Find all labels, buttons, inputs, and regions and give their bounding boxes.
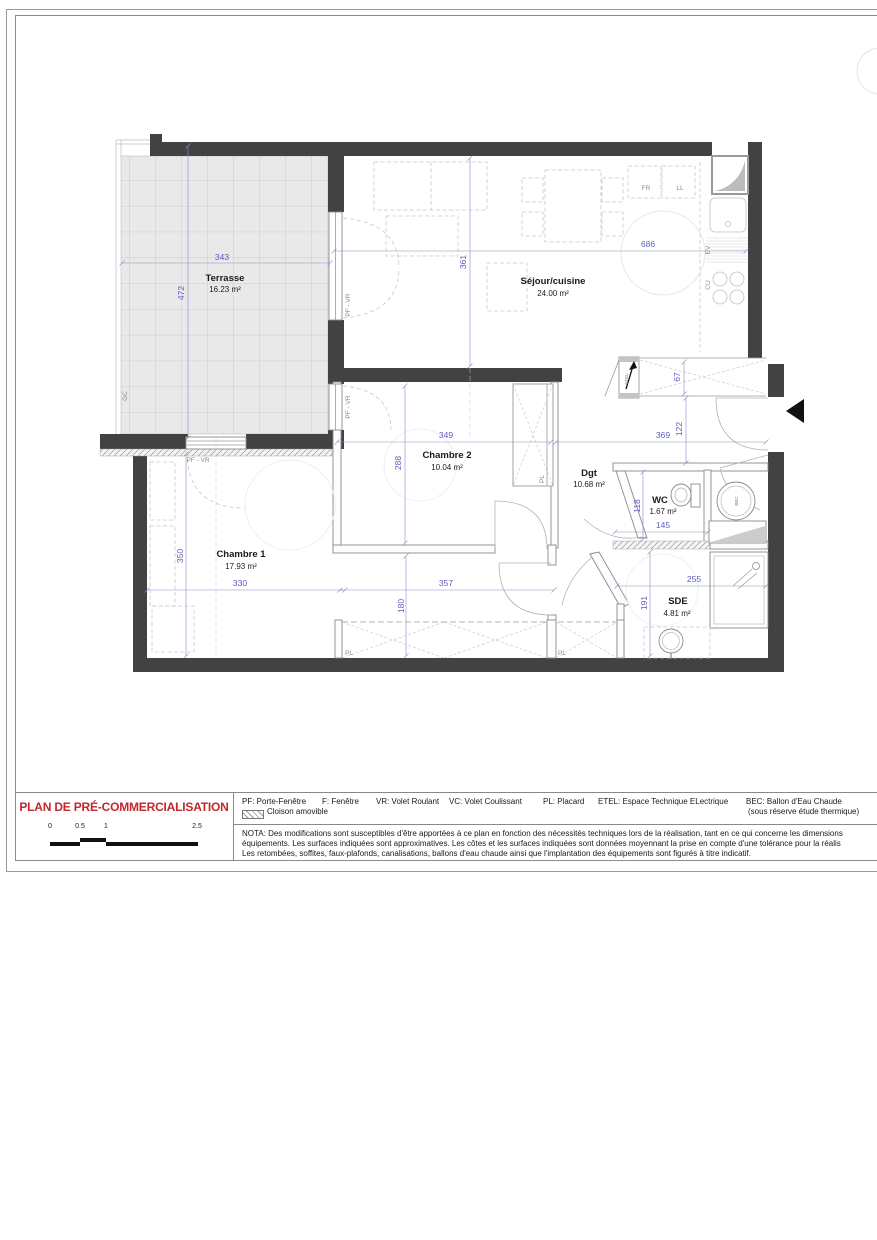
scale-tick: 1 — [104, 823, 108, 830]
drawing-sheet: ETEL PL PL PL — [0, 0, 877, 1240]
room-name-dgt: Dgt — [581, 468, 598, 479]
scale-tick: 0 — [48, 823, 52, 830]
washer-tag: LL — [676, 185, 684, 192]
room-area-dgt: 10.68 m² — [573, 480, 605, 489]
bec-tag: BEC — [734, 496, 739, 506]
dim-sde-width: 255 — [687, 574, 701, 584]
chambre-furniture — [150, 429, 698, 652]
title-block: PLAN DE PRÉ-COMMERCIALISATION 0 0.5 1 2.… — [15, 792, 877, 860]
placard-tag: PL — [345, 650, 353, 657]
fridge-tag: FR — [642, 185, 651, 192]
scale-tick: 0.5 — [75, 823, 85, 830]
legend-cell: PF: Porte-Fenêtre F: Fenêtre VR: Volet R… — [234, 793, 877, 860]
room-area-chambre2: 10.04 m² — [431, 463, 463, 472]
room-name-sde: SDE — [668, 596, 688, 607]
legend-item: PL: Placard — [543, 797, 584, 806]
water-heater: BEC — [709, 482, 766, 543]
room-area-wc: 1.67 m² — [649, 507, 676, 516]
placards-bottom: PL PL — [335, 620, 624, 658]
scale-segment — [106, 842, 198, 846]
room-area-chambre1: 17.93 m² — [225, 562, 257, 571]
room-name-wc: WC — [652, 495, 668, 506]
floor-plan-drawing: ETEL PL PL PL — [0, 0, 877, 790]
dim-chambre1-height: 350 — [175, 549, 185, 563]
scale-tick: 2.5 — [192, 823, 202, 830]
dim-sejour-width: 686 — [641, 239, 655, 249]
dim-chambre1-width: 330 — [233, 578, 247, 588]
dim-chambre2-height: 288 — [393, 456, 403, 470]
room-area-sde: 4.81 m² — [663, 609, 690, 618]
cloison-amovible-swatch — [242, 810, 264, 819]
dim-terrasse-width: 343 — [215, 252, 229, 262]
dim-chambre2-width: 349 — [439, 430, 453, 440]
dim-entry-height: 122 — [674, 422, 684, 436]
room-area-sejour: 24.00 m² — [537, 289, 569, 298]
dim-soffit-depth: 67 — [672, 372, 682, 382]
sejour-furniture: FR LL EV CU — [374, 162, 748, 352]
shower — [710, 552, 768, 628]
nota-line: équipements. Les surfaces indiquées sont… — [242, 839, 841, 849]
nota-line: NOTA: Des modifications sont susceptible… — [242, 829, 843, 839]
dim-wc-height: 118 — [632, 499, 642, 513]
scale-bar: 0 0.5 1 2.5 — [15, 793, 233, 860]
dim-placard-depth: 180 — [396, 599, 406, 613]
room-name-sejour: Séjour/cuisine — [521, 276, 586, 287]
gc-tag: GC — [122, 391, 129, 401]
etel-tag: ETEL — [624, 373, 629, 385]
compass-icon — [857, 48, 877, 94]
dim-sejour-height: 361 — [458, 255, 468, 269]
dim-strip-width: 357 — [439, 578, 453, 588]
dim-terrasse-height: 472 — [176, 286, 186, 300]
dim-wc-width: 145 — [656, 520, 670, 530]
room-name-terrasse: Terrasse — [206, 273, 245, 284]
cooktop-tag: CU — [705, 280, 712, 290]
pf-vr-tag: PF - VR — [345, 293, 352, 316]
nota-line: Les retombées, soffites, faux-plafonds, … — [242, 849, 751, 859]
legend-item: VR: Volet Roulant — [376, 797, 439, 806]
placard-chambre2: PL — [513, 384, 553, 486]
toilet — [671, 484, 700, 507]
legend-item: VC: Volet Coulissant — [449, 797, 522, 806]
scale-segment — [50, 842, 80, 846]
soffit-strip — [640, 358, 766, 396]
legend-item: ETEL: Espace Technique ELectrique — [598, 797, 728, 806]
pf-vr-tag: PF - VR — [345, 395, 352, 418]
room-name-chambre1: Chambre 1 — [216, 549, 266, 560]
legend-item: F: Fenêtre — [322, 797, 359, 806]
dim-sde-height: 191 — [639, 596, 649, 610]
etel-panel: ETEL — [605, 357, 639, 398]
washbasin — [644, 627, 710, 659]
room-area-terrasse: 16.23 m² — [209, 285, 241, 294]
scale-segment — [80, 838, 106, 842]
legend-item: BEC: Ballon d'Eau Chaude — [746, 797, 842, 806]
dim-entry-width: 369 — [656, 430, 670, 440]
legend-item: PF: Porte-Fenêtre — [242, 797, 306, 806]
placard-tag: PL — [539, 475, 546, 483]
placard-tag: PL — [558, 650, 566, 657]
sink-tag: EV — [705, 245, 712, 254]
entrance-arrow-icon — [786, 399, 804, 423]
technical-shaft — [712, 156, 748, 194]
legend-bec-note: (sous réserve étude thermique) — [748, 807, 859, 816]
room-name-chambre2: Chambre 2 — [422, 450, 471, 461]
legend-abbreviations: PF: Porte-Fenêtre F: Fenêtre VR: Volet R… — [234, 793, 877, 825]
legend-cloison-label: Cloison amovible — [267, 807, 328, 816]
title-cell: PLAN DE PRÉ-COMMERCIALISATION 0 0.5 1 2.… — [15, 793, 234, 860]
pf-vr-tag: PF - VR — [186, 457, 209, 464]
